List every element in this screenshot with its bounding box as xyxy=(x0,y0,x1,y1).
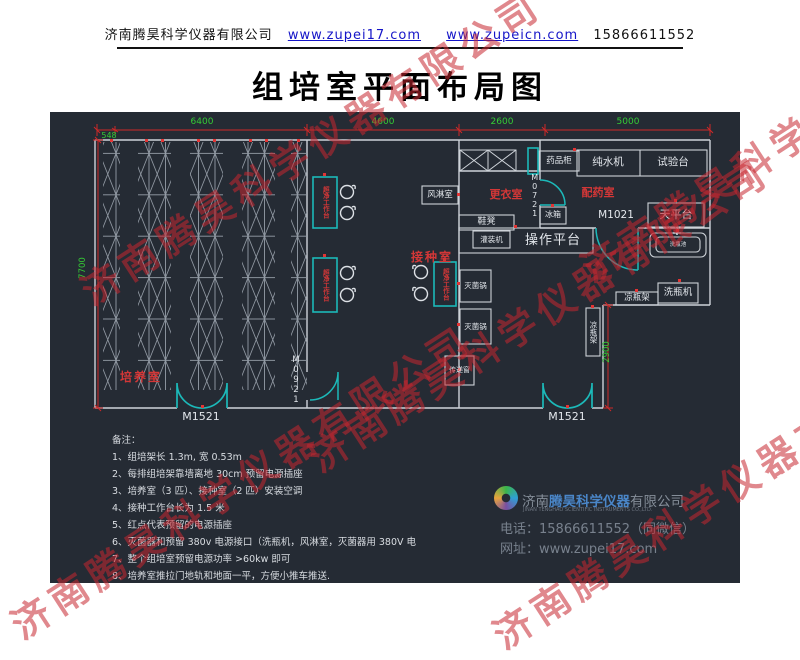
door-label-m1521-left: M1521 xyxy=(170,410,232,424)
fixture-test-bench: 试验台 xyxy=(642,150,704,176)
dim-7700: 7700 xyxy=(77,253,89,283)
room-label-changing: 更衣室 xyxy=(478,188,534,202)
door-label-m0721: M0721 xyxy=(527,173,541,217)
cad-panel: 6400 4600 2600 5000 548 7700 2900 培养室 接种… xyxy=(50,112,740,583)
fixture-sterilizer-1: 灭菌锅 xyxy=(460,270,491,302)
fixture-clean-bench-3: 超净工作台 xyxy=(434,263,456,305)
room-label-dispensing: 配药室 xyxy=(574,186,622,200)
fixture-operation-platform: 操作平台 xyxy=(512,228,594,253)
footer-company-name-en: JINAN TENGHAO SCIENTIFIC INSTRUMENTS CO.… xyxy=(523,507,653,513)
equipment-boxes xyxy=(422,150,707,385)
note-item-4: 4、接种工作台长为 1.5 米 xyxy=(112,500,472,517)
dim-548: 548 xyxy=(96,131,122,141)
header-link-zupei17[interactable]: www.zupei17.com xyxy=(288,28,421,43)
stools xyxy=(341,185,428,301)
fixture-clean-bench-2: 超净工作台 xyxy=(313,259,337,311)
header-rule xyxy=(117,47,683,49)
dim-2900: 2900 xyxy=(601,337,613,367)
dim-2600: 2600 xyxy=(474,117,530,128)
fixture-sink: 洗瓶池 xyxy=(664,242,692,250)
culture-racks xyxy=(103,142,307,390)
fixture-bottle-rack-h: 凉瓶架 xyxy=(616,292,658,305)
note-item-7: 7、整个组培室预留电源功率 >60kw 即可 xyxy=(112,551,472,568)
company-logo xyxy=(494,486,518,510)
fixture-transfer-window: 传递窗 xyxy=(445,356,474,385)
footer-website[interactable]: 网址：www.zupei17.com xyxy=(500,538,657,557)
notes-block: 备注： 1、组培架长 1.3m, 宽 0.53m 2、每排组培架靠墙离地 30c… xyxy=(112,432,472,585)
note-item-2: 2、每排组培架靠墙离地 30cm 预留电源插座 xyxy=(112,466,472,483)
fixture-air-shower: 风淋室 xyxy=(422,186,458,204)
fixture-bottle-rack-v: 凉瓶架 xyxy=(586,309,600,355)
note-item-3: 3、培养室（3 匹）、接种室（2 匹）安装空调 xyxy=(112,483,472,500)
footer-phone: 电话：15866611552（同微信） xyxy=(500,518,695,537)
note-item-1: 1、组培架长 1.3m, 宽 0.53m xyxy=(112,449,472,466)
dim-6400: 6400 xyxy=(172,117,232,128)
dim-5000: 5000 xyxy=(600,117,656,128)
header-link-zupeicn[interactable]: www.zupeicn.com xyxy=(446,28,578,43)
page-title: 组培室平面布局图 xyxy=(0,62,800,107)
note-item-8: 8、培养室推拉门地轨和地面一平，方便小推车推送. xyxy=(112,568,472,585)
lockers xyxy=(460,150,516,171)
fixture-medicine-cabinet: 药品柜 xyxy=(539,151,579,171)
fixture-filling-machine: 灌装机 xyxy=(473,231,510,248)
fixture-sterilizer-2: 灭菌锅 xyxy=(460,309,491,344)
door-label-m1521-right: M1521 xyxy=(536,410,598,424)
walls xyxy=(95,140,710,408)
fixture-shoe-bench: 鞋凳 xyxy=(459,215,514,230)
page: { "header": { "company": "济南腾昊科学仪器有限公司",… xyxy=(0,0,800,600)
note-item-5: 5、红点代表预留的电源插座 xyxy=(112,517,472,534)
notes-title: 备注： xyxy=(112,432,472,449)
header-company: 济南腾昊科学仪器有限公司 xyxy=(105,28,273,43)
note-item-6: 6、灭菌器和预留 380v 电源接口（洗瓶机，风淋室，灭菌器用 380V 电 xyxy=(112,534,472,551)
dim-4600: 4600 xyxy=(353,117,413,128)
door-label-m0921: M0921 xyxy=(288,357,303,403)
door-label-m1021: M1021 xyxy=(594,209,638,222)
page-header: 济南腾昊科学仪器有限公司 www.zupei17.com www.zupeicn… xyxy=(0,24,800,43)
fixture-water-purifier: 纯水机 xyxy=(580,150,636,176)
fixture-fridge: 冰箱 xyxy=(540,207,566,224)
fixture-balance-table: 天平台 xyxy=(648,203,704,227)
fixture-clean-bench-1: 超净工作台 xyxy=(313,178,337,227)
fixture-bottle-washer: 洗瓶机 xyxy=(658,283,698,303)
room-label-culture: 培养室 xyxy=(112,369,170,385)
header-phone: 15866611552 xyxy=(593,28,695,43)
